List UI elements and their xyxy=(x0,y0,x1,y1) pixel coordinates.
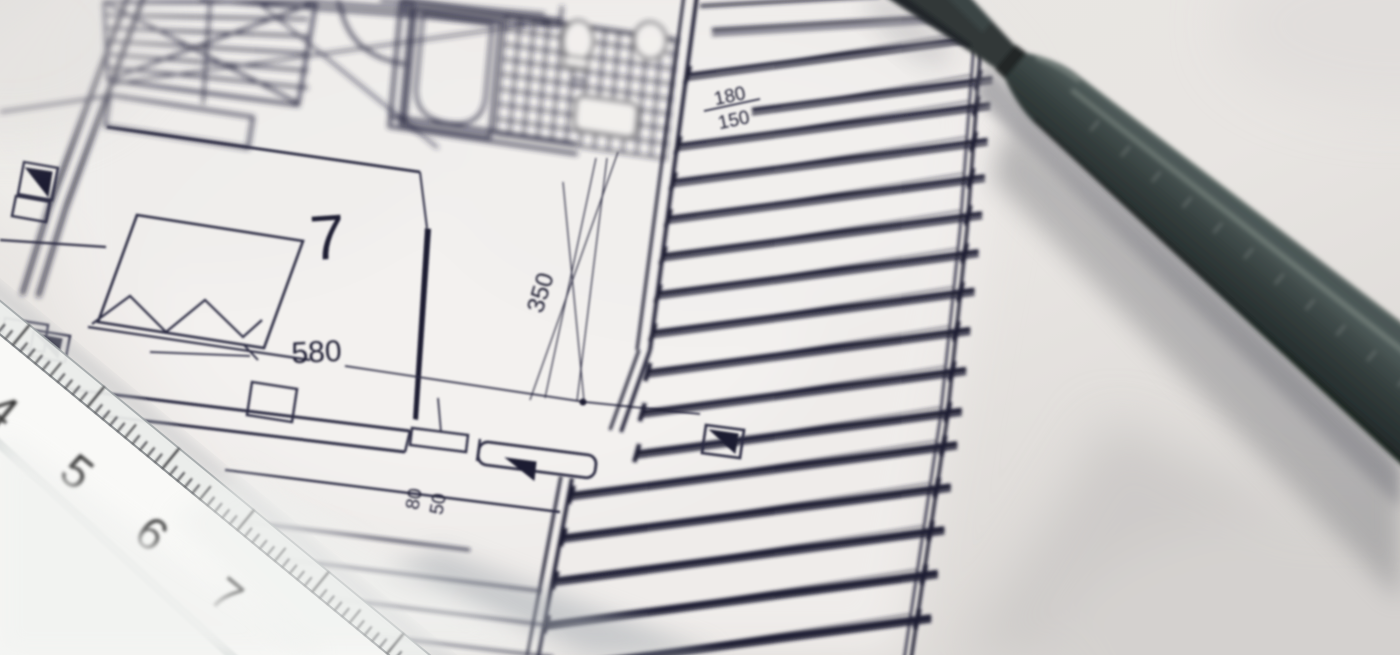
svg-text:7: 7 xyxy=(308,202,348,274)
svg-text:80: 80 xyxy=(402,487,426,511)
svg-text:50: 50 xyxy=(426,492,450,516)
svg-text:580: 580 xyxy=(291,335,343,371)
